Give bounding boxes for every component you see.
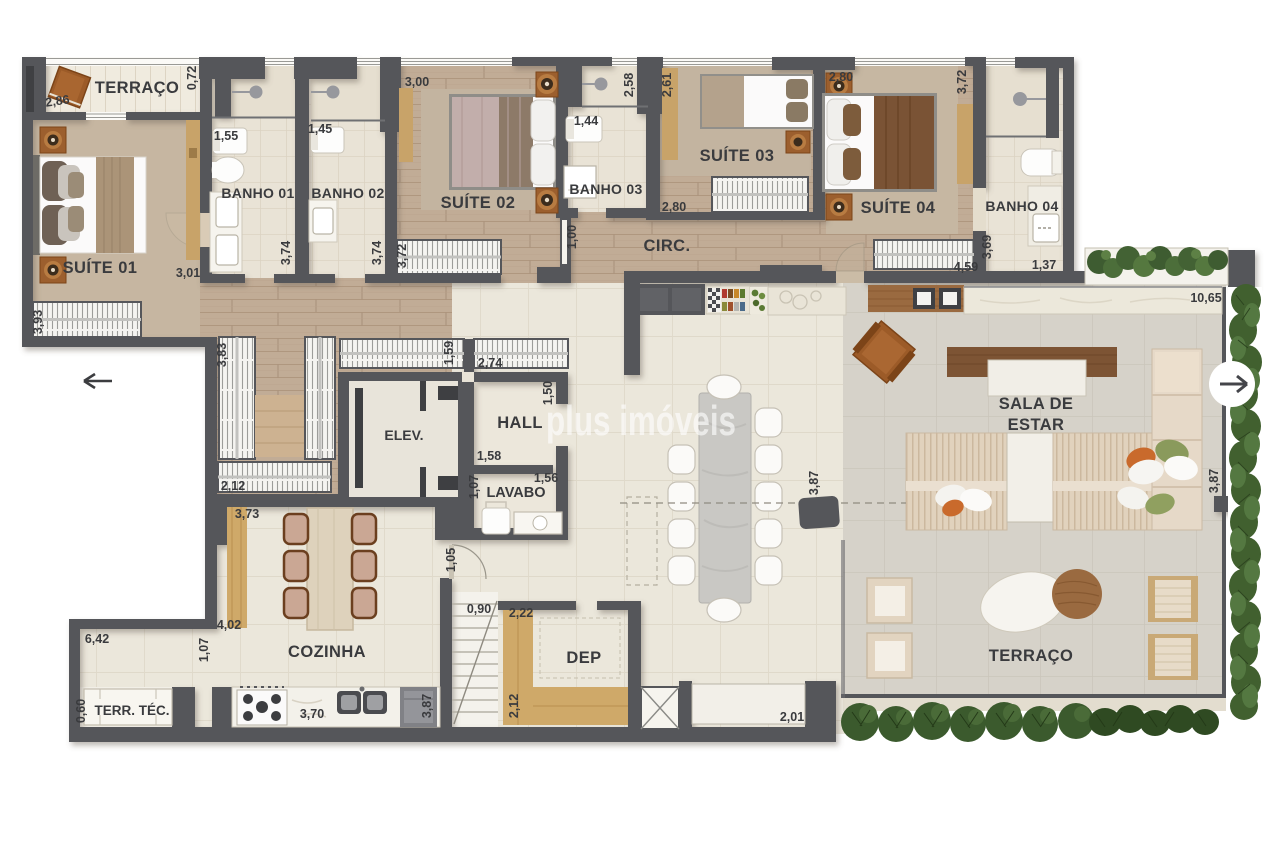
svg-text:1,05: 1,05 [444,548,458,572]
svg-text:2,12: 2,12 [507,694,521,718]
svg-text:3,70: 3,70 [300,707,324,721]
svg-text:10,65: 10,65 [1190,291,1221,305]
svg-text:HALL: HALL [497,414,543,432]
svg-text:DEP: DEP [566,649,601,667]
svg-text:0,60: 0,60 [74,699,88,723]
svg-text:COZINHA: COZINHA [288,643,366,661]
svg-text:SUÍTE 03: SUÍTE 03 [700,146,775,165]
svg-text:3,74: 3,74 [370,241,384,265]
svg-text:4,02: 4,02 [217,618,241,632]
svg-text:1,45: 1,45 [308,122,332,136]
svg-text:0,90: 0,90 [467,602,491,616]
svg-text:CIRC.: CIRC. [644,237,691,255]
svg-text:1,59: 1,59 [442,341,456,365]
svg-text:3,73: 3,73 [235,507,259,521]
svg-text:1,55: 1,55 [214,129,238,143]
svg-text:1,44: 1,44 [574,114,598,128]
svg-text:1,07: 1,07 [197,638,211,662]
svg-text:SUÍTE 01: SUÍTE 01 [63,258,138,277]
svg-text:ESTAR: ESTAR [1008,416,1065,434]
svg-text:2,12: 2,12 [221,479,245,493]
svg-text:1,58: 1,58 [477,449,501,463]
svg-text:1,00: 1,00 [565,225,579,249]
svg-text:1,37: 1,37 [1032,258,1056,272]
svg-text:2,61: 2,61 [660,73,674,97]
svg-text:3,83: 3,83 [215,343,229,367]
svg-text:BANHO 01: BANHO 01 [221,185,294,201]
svg-text:1,56: 1,56 [534,471,558,485]
svg-text:3,87: 3,87 [1207,469,1221,493]
svg-text:BANHO 03: BANHO 03 [569,181,642,197]
svg-text:SUÍTE 04: SUÍTE 04 [861,198,936,217]
svg-text:1,07: 1,07 [467,475,481,499]
svg-text:plus imóveis: plus imóveis [546,397,736,444]
svg-text:3,72: 3,72 [395,244,409,268]
svg-text:2,58: 2,58 [622,73,636,97]
svg-text:3,72: 3,72 [955,70,969,94]
svg-text:TERRAÇO: TERRAÇO [989,647,1073,665]
svg-text:2,01: 2,01 [780,710,804,724]
svg-text:TERR. TÉC.: TERR. TÉC. [94,703,169,718]
svg-text:BANHO 04: BANHO 04 [985,198,1058,214]
svg-text:2,22: 2,22 [509,606,533,620]
svg-text:2,80: 2,80 [829,70,853,84]
svg-text:3,87: 3,87 [807,471,821,495]
svg-text:TERRAÇO: TERRAÇO [95,79,179,97]
svg-text:BANHO 02: BANHO 02 [311,185,384,201]
svg-text:0,72: 0,72 [185,66,199,90]
svg-text:3,00: 3,00 [405,75,429,89]
svg-text:SALA DE: SALA DE [999,395,1074,413]
svg-text:3,01: 3,01 [176,266,200,280]
svg-text:6,42: 6,42 [85,632,109,646]
svg-text:4,59: 4,59 [954,260,978,274]
svg-text:2,74: 2,74 [478,356,502,370]
svg-text:ELEV.: ELEV. [384,427,423,443]
svg-text:SUÍTE 02: SUÍTE 02 [441,193,516,212]
svg-text:3,87: 3,87 [420,694,434,718]
svg-text:3,74: 3,74 [279,241,293,265]
svg-text:2,80: 2,80 [662,200,686,214]
svg-text:3,69: 3,69 [980,235,994,259]
svg-text:LAVABO: LAVABO [486,485,545,501]
svg-text:3,93: 3,93 [31,310,45,334]
